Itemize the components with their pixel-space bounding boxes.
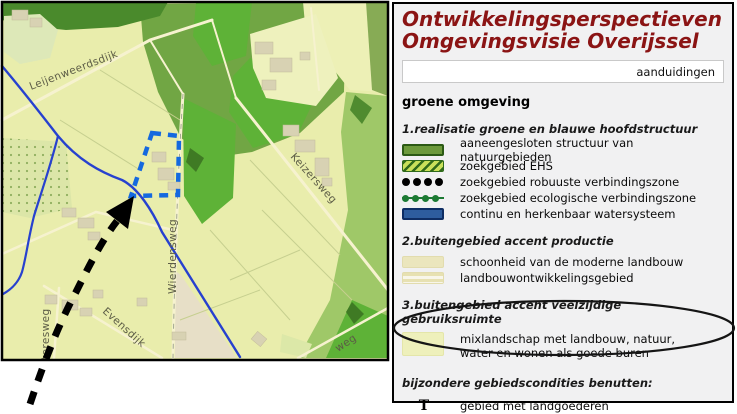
legend-item-landbouwontwikkelingsgebied: landbouwontwikkelingsgebied <box>402 270 724 286</box>
swatch-solid-cream <box>402 256 444 268</box>
swatch-cream-stripes <box>402 272 444 284</box>
section3-rows: mixlandschap met landbouw, natuur, water… <box>402 332 724 360</box>
page-title: Ontwikkelingsperspectieven Omgevingsvisi… <box>402 8 724 52</box>
legend-item-schoonheid-landbouw: schoonheid van de moderne landbouw <box>402 254 724 270</box>
legend-label: mixlandschap met landbouw, natuur, water… <box>460 332 710 360</box>
aanduidingen-label: aanduidingen <box>636 65 715 79</box>
section3-title: 3.buitengebied accent veelzijdige gebrui… <box>402 298 724 326</box>
legend-item-watersysteem: continu en herkenbaar watersysteem <box>402 206 724 222</box>
aanduidingen-bar[interactable]: aanduidingen <box>402 60 724 83</box>
section2-title: 2.buitengebied accent productie <box>402 234 724 248</box>
swatch-green-hatch <box>402 160 444 172</box>
legend-item-landgoederen: T gebied met landgoederen <box>402 398 724 414</box>
legend-item-ecologische-verbindingszone: zoekgebied ecologische verbindingszone <box>402 190 724 206</box>
swatch-green-dots <box>402 195 444 202</box>
legend-panel: Ontwikkelingsperspectieven Omgevingsvisi… <box>392 2 734 403</box>
legend-label: landbouwontwikkelingsgebied <box>460 271 634 285</box>
section4-title: bijzondere gebiedscondities benutten: <box>402 376 724 390</box>
swatch-solid-green <box>402 144 444 156</box>
legend-label: continu en herkenbaar watersysteem <box>460 207 676 221</box>
legend-label: schoonheid van de moderne landbouw <box>460 255 683 269</box>
map-canvas[interactable]: Leijenweerdsdijk Keizersweg Wierdensweg … <box>0 0 390 363</box>
swatch-pale-yellow <box>402 332 444 356</box>
legend-item-mixlandschap: mixlandschap met landbouw, natuur, water… <box>402 332 724 360</box>
map-panel[interactable]: Leijenweerdsdijk Keizersweg Wierdensweg … <box>0 0 390 411</box>
road-label-wierdensweg: Wierdensweg <box>167 219 179 294</box>
road-label-teresweg: teresweg <box>40 308 52 360</box>
section2-rows: schoonheid van de moderne landbouw landb… <box>402 254 724 286</box>
legend-item-robuuste-verbindingszone: zoekgebied robuuste verbindingszone <box>402 174 724 190</box>
legend-label: zoekgebied robuuste verbindingszone <box>460 175 679 189</box>
title-line-1: Ontwikkelingsperspectieven <box>402 8 724 30</box>
legend-label: zoekgebied EHS <box>460 159 553 173</box>
legend-heading: groene omgeving <box>402 95 724 110</box>
section1-rows: aaneengesloten structuur van natuurgebie… <box>402 142 724 222</box>
section1-title: 1.realisatie groene en blauwe hoofdstruc… <box>402 122 724 136</box>
legend-label: zoekgebied ecologische verbindingszone <box>460 191 696 205</box>
swatch-solid-blue <box>402 208 444 220</box>
landgoed-icon: T <box>402 398 446 414</box>
legend-item-natuurgebieden: aaneengesloten structuur van natuurgebie… <box>402 142 724 158</box>
title-line-2: Omgevingsvisie Overijssel <box>402 30 724 52</box>
swatch-black-dots <box>402 178 444 186</box>
